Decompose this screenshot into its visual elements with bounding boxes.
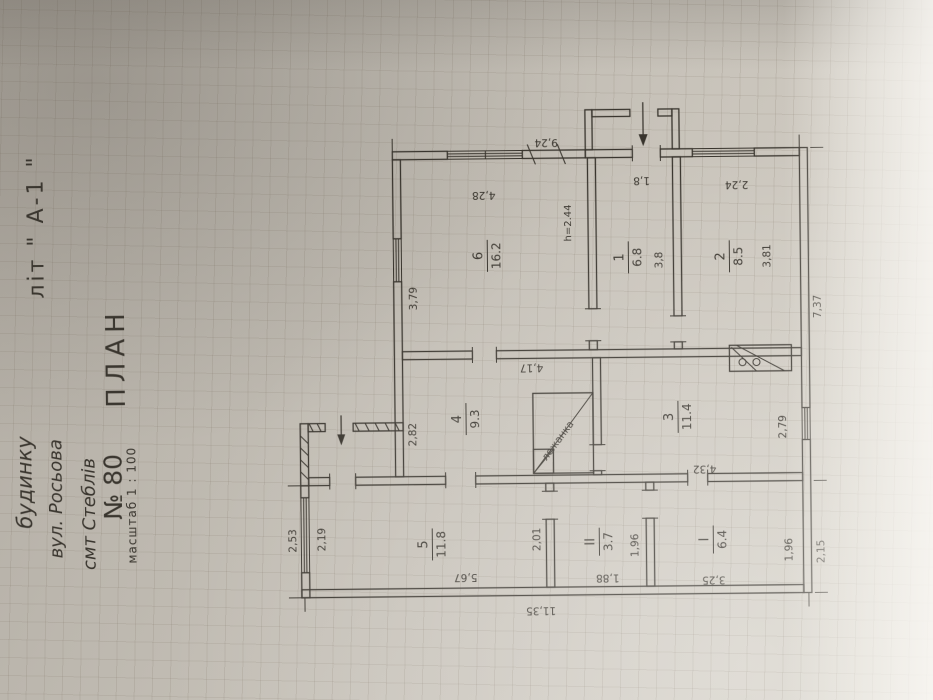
room-5-dim-bottom: 2,01 [531, 528, 543, 552]
room-2-dim-side: 2,24 [725, 178, 749, 190]
stove-bench: лежанка [533, 393, 594, 474]
title-scale: масштаб 1 : 100 [124, 447, 139, 564]
plan-document: будинку вул. Росьова смт Стеблів № 80 ПЛ… [0, 0, 931, 700]
room-2-number: 2 [713, 252, 728, 260]
room-II-area: 3.7 [601, 532, 615, 551]
title-town: смт Стеблів [78, 458, 100, 570]
room-3-area: 11.4 [680, 403, 694, 430]
room-I-dim-side: 3,25 [702, 573, 726, 585]
dim-annex-bottom: 2,15 [815, 540, 827, 564]
room-6-area: 16.2 [489, 242, 503, 269]
title-block: будинку вул. Росьова смт Стеблів № 80 ПЛ… [9, 153, 139, 570]
room-5-number: 5 [416, 540, 431, 548]
room-4-area: 9.3 [468, 409, 482, 428]
title-house: будинку [12, 436, 37, 529]
room-6-dim-top: 3,79 [408, 287, 420, 311]
room-5-area: 11.8 [434, 531, 448, 558]
room-5-dim-top: 2,19 [316, 528, 328, 552]
room-3-number: 3 [662, 413, 677, 421]
room-1-dim-side: 1,8 [633, 174, 650, 186]
room-6-number: 6 [471, 252, 486, 260]
room-1-area: 6.8 [630, 248, 644, 267]
room-II-dim-side: 1,88 [596, 571, 620, 583]
room-2-dim-width: 3,81 [761, 244, 773, 268]
dimension-ticks [284, 134, 828, 612]
entrance-arrow-main [638, 102, 647, 146]
room-I-area: 6.4 [715, 530, 729, 549]
windows [297, 147, 811, 572]
room-5-dim-side: 5,67 [454, 571, 478, 583]
dim-left-side: 11,35 [526, 604, 556, 616]
room-2-area: 8.5 [731, 247, 745, 266]
title-plan: ПЛАН [101, 307, 132, 408]
room-1-dim-width: 3,8 [653, 252, 665, 269]
dim-annex-top: 2,53 [287, 529, 299, 553]
room-1-number: 1 [612, 253, 627, 261]
overall-dimensions: 2,53 9,24 11,35 7,37 2,15 [283, 133, 828, 619]
stove-bench-label: лежанка [540, 419, 576, 463]
room-I-number: I [697, 538, 712, 542]
title-liter: літ " А-1 " [23, 154, 50, 298]
dim-right-side: 9,24 [534, 136, 558, 148]
room-4-dim-side: 4,17 [520, 361, 544, 373]
dim-main-bottom: 7,37 [812, 295, 824, 319]
room-I-dim-bottom: 1,96 [783, 538, 795, 562]
title-street: вул. Росьова [45, 439, 67, 558]
plan-drawing: будинку вул. Росьова смт Стеблів № 80 ПЛ… [0, 0, 931, 700]
room-4-dim-top: 2,82 [407, 423, 419, 447]
room-4-number: 4 [450, 415, 465, 423]
entrance-arrow-porch [337, 415, 345, 445]
room-II-number: II [583, 538, 598, 546]
room-3-dim-bottom: 2,79 [777, 415, 789, 439]
room-II-dim-bottom: 1,96 [629, 533, 641, 557]
floor-plan-photo: будинку вул. Росьова смт Стеблів № 80 ПЛ… [0, 0, 933, 700]
room-3-dim-side: 4,32 [693, 462, 717, 474]
room-6-height-note: h=2.44 [563, 204, 574, 241]
room-6-dim-side: 4,28 [472, 189, 496, 201]
